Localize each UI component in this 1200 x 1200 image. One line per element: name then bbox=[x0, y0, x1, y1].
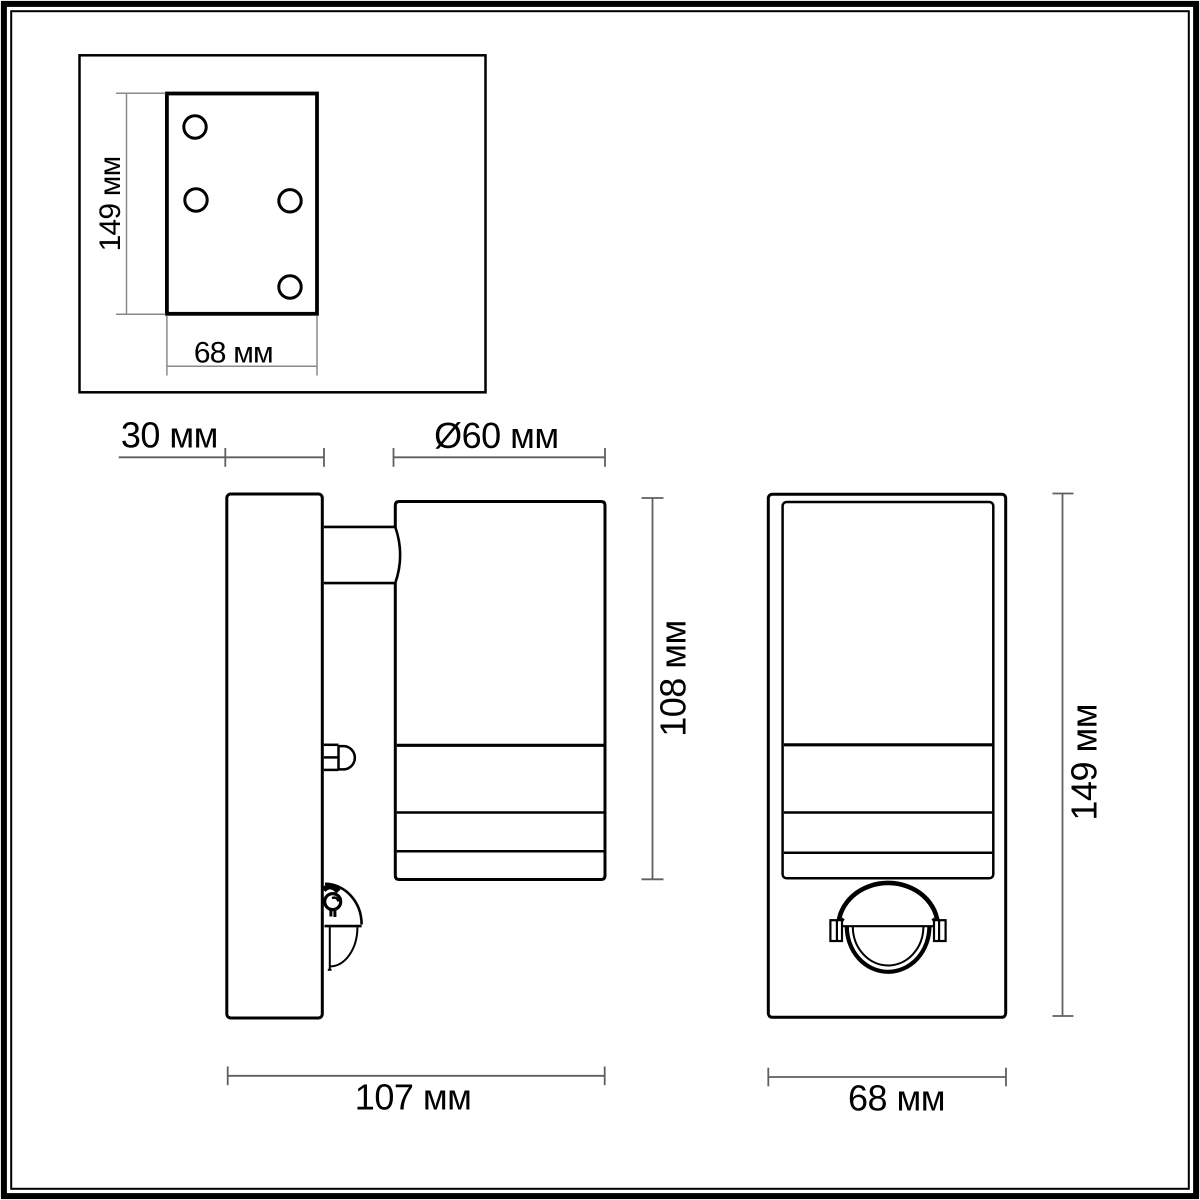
svg-text:68 мм: 68 мм bbox=[194, 337, 273, 370]
svg-text:68 мм: 68 мм bbox=[848, 1078, 945, 1119]
svg-text:149 мм: 149 мм bbox=[1063, 704, 1104, 821]
svg-text:30 мм: 30 мм bbox=[121, 414, 218, 455]
svg-text:149 мм: 149 мм bbox=[94, 157, 127, 252]
svg-text:107 мм: 107 мм bbox=[355, 1077, 472, 1118]
svg-text:108 мм: 108 мм bbox=[652, 620, 693, 737]
svg-text:Ø60 мм: Ø60 мм bbox=[434, 415, 559, 456]
